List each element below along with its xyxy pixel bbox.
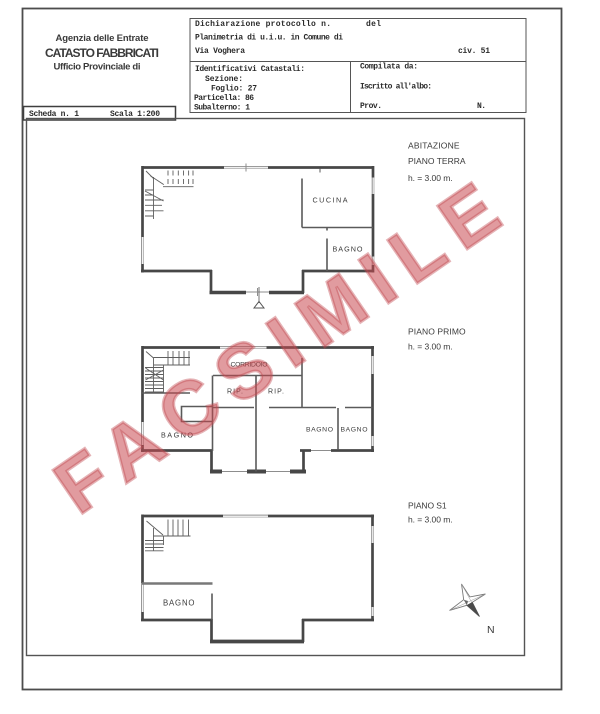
svg-text:N.: N. [477,102,486,111]
svg-text:Foglio: 27: Foglio: 27 [211,85,257,94]
svg-text:Subalterno: 1: Subalterno: 1 [194,104,250,113]
svg-text:Iscritto all'albo:: Iscritto all'albo: [360,83,432,92]
svg-text:BAGNO: BAGNO [163,599,195,608]
svg-text:PIANO S1: PIANO S1 [408,501,447,511]
svg-text:Planimetria di u.i.u. in Comun: Planimetria di u.i.u. in Comune di [195,34,343,43]
svg-text:PIANO PRIMO: PIANO PRIMO [408,327,466,337]
svg-text:Via Voghera: Via Voghera [195,47,245,56]
svg-text:Sezione:: Sezione: [205,75,243,84]
svg-text:Dichiarazione protocollo n.: Dichiarazione protocollo n. [195,20,331,29]
svg-text:h. = 3.00 m.: h. = 3.00 m. [408,515,453,525]
svg-text:civ. 51: civ. 51 [458,47,490,56]
svg-text:Agenzia delle Entrate: Agenzia delle Entrate [56,33,149,44]
svg-text:h. = 3.00 m.: h. = 3.00 m. [408,342,453,352]
svg-text:BAGNO: BAGNO [341,427,368,434]
svg-text:Scheda n. 1: Scheda n. 1 [29,110,79,119]
svg-text:Prov.: Prov. [360,102,382,111]
svg-text:Compilata da:: Compilata da: [360,63,418,72]
svg-text:Ufficio Provinciale di: Ufficio Provinciale di [54,62,141,73]
svg-text:BAGNO: BAGNO [306,427,333,434]
svg-text:ABITAZIONE: ABITAZIONE [408,141,460,151]
svg-text:Scala 1:200: Scala 1:200 [110,110,160,119]
svg-text:Particella: 86: Particella: 86 [194,94,254,103]
svg-text:PIANO TERRA: PIANO TERRA [408,156,466,166]
svg-text:N: N [487,624,495,636]
svg-text:CATASTO FABBRICATI: CATASTO FABBRICATI [45,46,159,60]
svg-text:del: del [366,20,381,29]
svg-text:Identificativi Catastali:: Identificativi Catastali: [195,65,305,74]
